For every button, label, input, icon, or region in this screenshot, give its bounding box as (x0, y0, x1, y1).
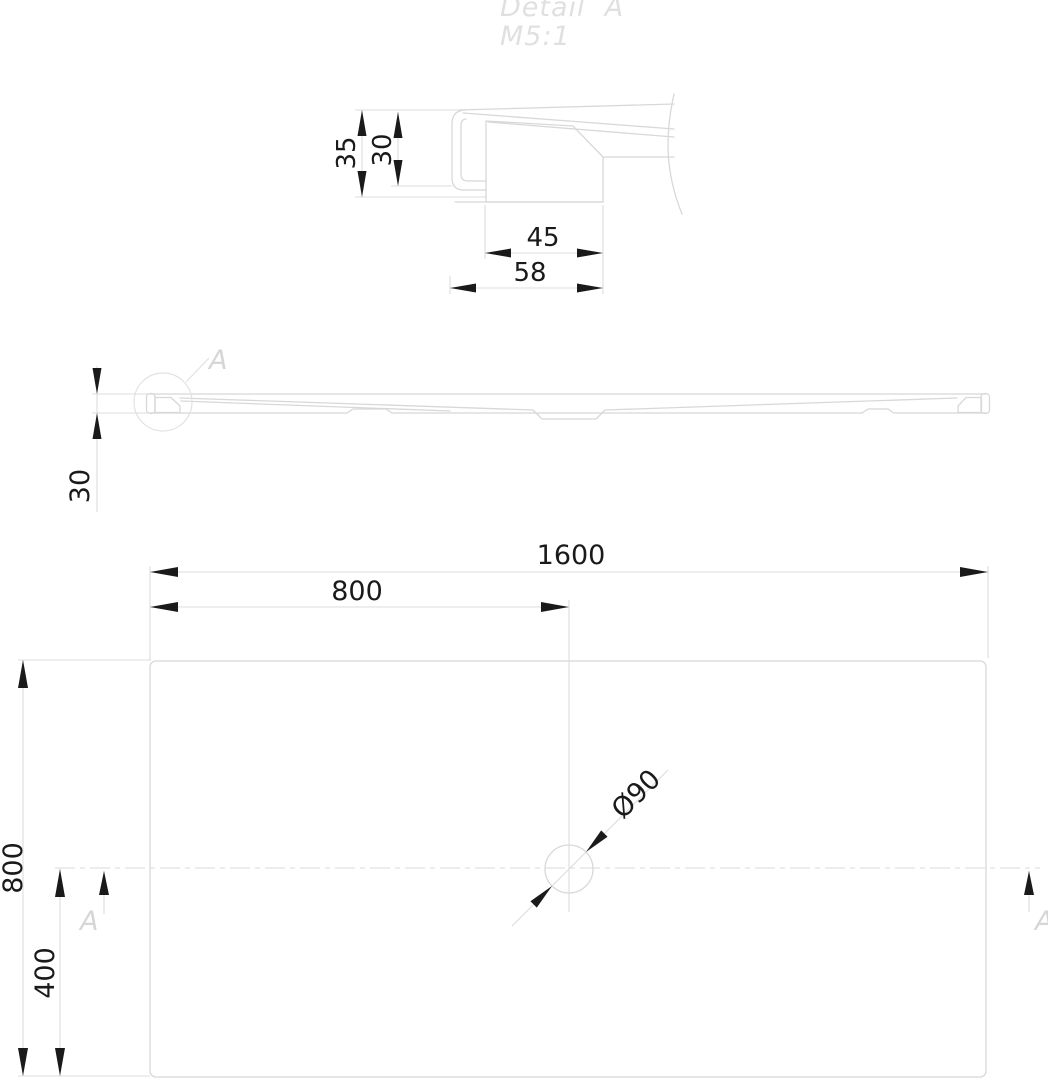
side-hatch-left (155, 398, 180, 413)
dim-side-30-label: 30 (65, 469, 96, 503)
drain: Ø90 (512, 764, 668, 926)
detail-title: Detail A (500, 0, 624, 23)
detail-view: Detail A M5:1 (332, 0, 682, 294)
dim-plan-400: 400 (30, 869, 65, 1076)
section-label-left: A (78, 906, 98, 937)
dim-detail-35: 35 (332, 110, 367, 197)
dim-1600-label: 1600 (537, 540, 606, 571)
detail-scale: M5:1 (500, 21, 571, 52)
plan-extension-lines (18, 566, 988, 1076)
dim-plan-800-top: 800 (150, 576, 569, 612)
technical-drawing: Detail A M5:1 (0, 0, 1048, 1080)
detail-marker-label: A (207, 345, 227, 376)
dim-30-label: 30 (368, 133, 398, 166)
dim-plan-800-left: 800 (0, 660, 29, 1076)
section-marker-left: A (78, 871, 109, 937)
dim-35-label: 35 (332, 136, 362, 169)
tray-outline (150, 661, 986, 1077)
dim-detail-45: 45 (485, 223, 603, 258)
section-marker-right: A (1024, 871, 1048, 937)
side-view: A 30 (65, 345, 990, 512)
dim-detail-30: 30 (368, 112, 403, 186)
dim-45-label: 45 (526, 223, 559, 253)
dim-800-left-label: 800 (0, 842, 29, 894)
section-label-right: A (1033, 906, 1048, 937)
drain-diameter-label: Ø90 (606, 764, 667, 825)
dim-plan-1600: 1600 (150, 540, 988, 577)
side-profile (147, 394, 990, 420)
dim-400-label: 400 (30, 947, 61, 999)
detail-marker-circle: A (134, 345, 227, 431)
break-line (668, 94, 682, 214)
plan-view: 1600 800 800 400 Ø90 (0, 540, 1048, 1077)
dim-800-top-label: 800 (331, 576, 383, 607)
dim-detail-58: 58 (450, 258, 603, 293)
dim-58-label: 58 (513, 258, 546, 288)
side-hatch-right (958, 398, 982, 413)
detail-hatch-block (486, 121, 603, 202)
drawing-canvas: Detail A M5:1 (0, 0, 1048, 1080)
